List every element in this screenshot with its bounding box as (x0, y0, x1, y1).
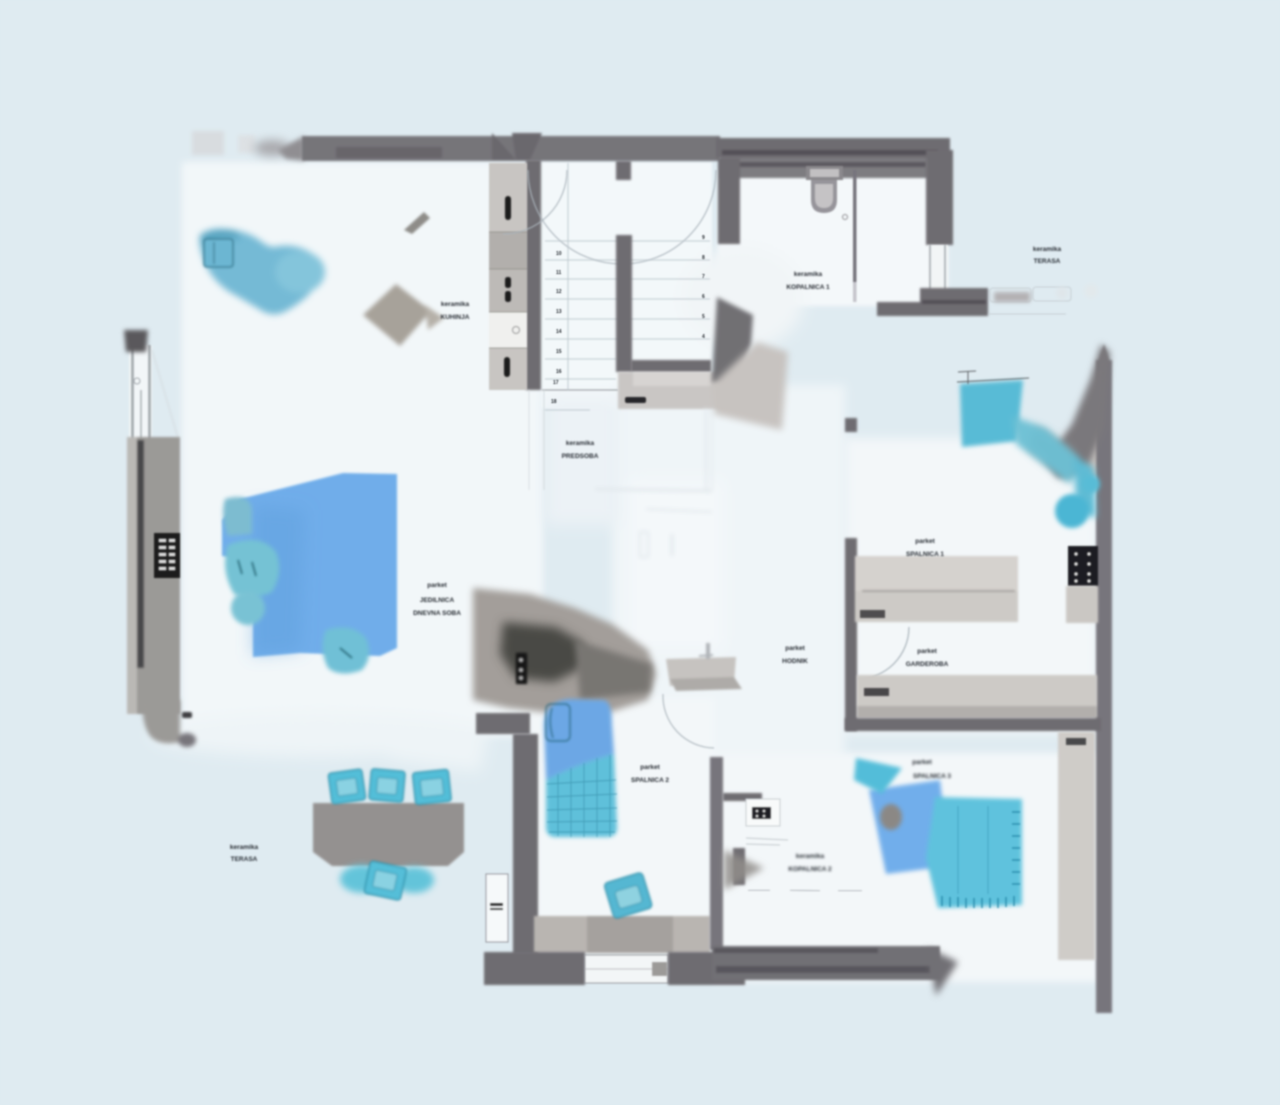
svg-text:parket: parket (427, 582, 447, 589)
svg-text:SPALNICA 3: SPALNICA 3 (913, 773, 951, 780)
svg-text:18: 18 (551, 399, 557, 405)
svg-text:parket: parket (785, 645, 805, 652)
svg-text:keramika: keramika (566, 440, 595, 447)
svg-text:TERASA: TERASA (231, 856, 258, 863)
svg-text:TERASA: TERASA (1034, 258, 1061, 265)
svg-text:parket: parket (917, 648, 937, 655)
svg-text:keramika: keramika (230, 844, 259, 851)
svg-text:keramika: keramika (794, 271, 823, 278)
svg-text:keramika: keramika (1033, 246, 1062, 253)
svg-text:11: 11 (556, 270, 562, 276)
svg-text:8: 8 (702, 255, 705, 261)
svg-text:PREDSOBA: PREDSOBA (562, 453, 599, 460)
svg-text:5: 5 (702, 314, 705, 320)
svg-text:DNEVNA SOBA: DNEVNA SOBA (413, 610, 461, 617)
svg-text:14: 14 (556, 329, 562, 335)
svg-text:4: 4 (702, 334, 705, 340)
svg-text:16: 16 (556, 369, 562, 375)
svg-text:10: 10 (556, 251, 562, 257)
svg-text:SPALNICA 1: SPALNICA 1 (906, 551, 944, 558)
svg-text:parket: parket (915, 538, 935, 545)
svg-text:keramika: keramika (796, 853, 825, 860)
svg-text:SPALNICA 2: SPALNICA 2 (631, 777, 669, 784)
svg-text:parket: parket (640, 764, 660, 771)
svg-text:15: 15 (556, 349, 562, 355)
svg-text:6: 6 (702, 294, 705, 300)
svg-text:keramika: keramika (441, 301, 470, 308)
svg-text:JEDILNICA: JEDILNICA (420, 597, 455, 604)
svg-text:17: 17 (553, 380, 559, 386)
svg-text:7: 7 (702, 274, 705, 280)
svg-text:9: 9 (702, 235, 705, 241)
svg-text:KOPALNICA 2: KOPALNICA 2 (788, 866, 832, 873)
svg-text:parket: parket (912, 759, 932, 766)
svg-text:GARDEROBA: GARDEROBA (906, 661, 949, 668)
svg-text:KOPALNICA 1: KOPALNICA 1 (786, 284, 830, 291)
svg-text:12: 12 (556, 289, 562, 295)
svg-text:KUHINJA: KUHINJA (441, 314, 470, 321)
svg-text:13: 13 (556, 309, 562, 315)
svg-text:HODNIK: HODNIK (782, 658, 808, 665)
